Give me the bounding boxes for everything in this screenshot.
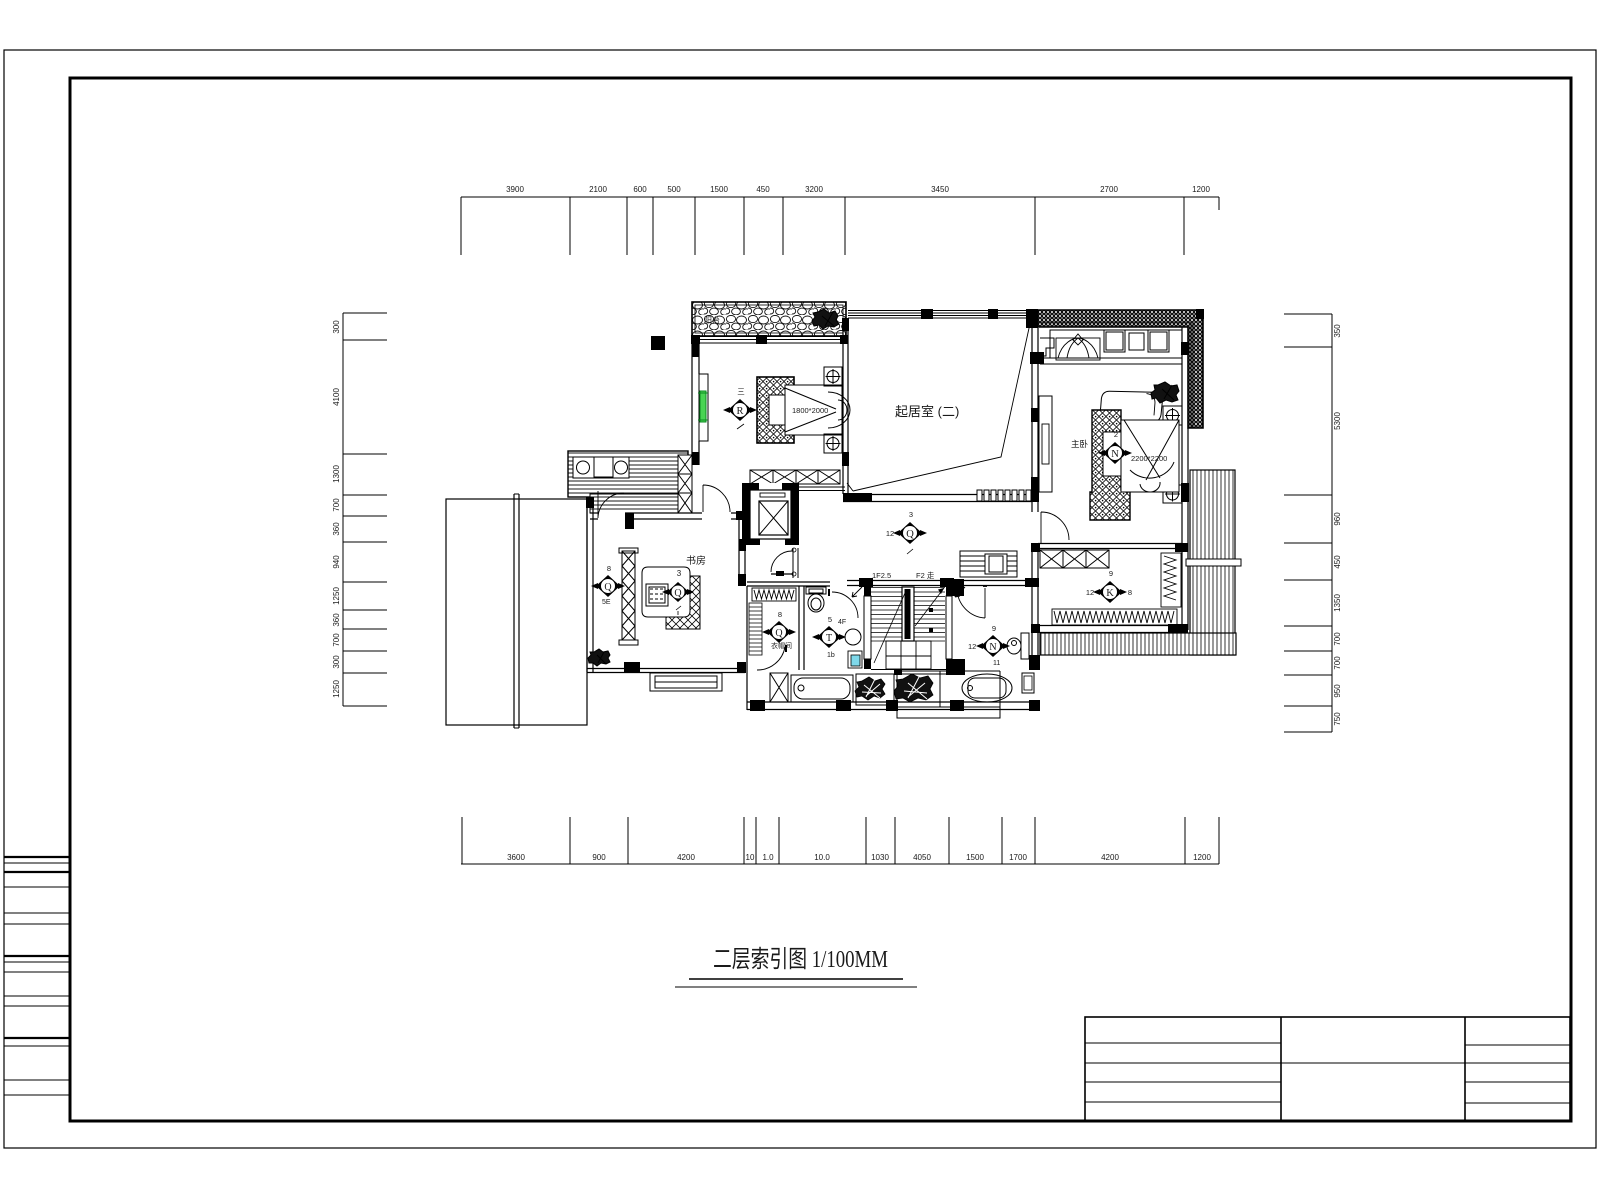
svg-text:500: 500 [667, 185, 681, 194]
svg-text:10.0: 10.0 [814, 853, 830, 862]
svg-text:2200*2200: 2200*2200 [1131, 454, 1167, 463]
svg-text:8: 8 [1128, 588, 1132, 597]
svg-text:3200: 3200 [805, 185, 823, 194]
svg-text:1200: 1200 [1192, 185, 1210, 194]
svg-text:9: 9 [1109, 569, 1113, 578]
svg-text:12: 12 [1086, 588, 1094, 597]
svg-text:600: 600 [633, 185, 647, 194]
svg-text:350: 350 [1333, 324, 1342, 338]
svg-text:Q: Q [674, 588, 682, 599]
svg-text:F2 走: F2 走 [916, 571, 935, 580]
svg-text:950: 950 [1333, 684, 1342, 698]
svg-text:Q: Q [906, 529, 914, 540]
svg-text:3450: 3450 [931, 185, 949, 194]
svg-text:4050: 4050 [913, 853, 931, 862]
svg-text:700: 700 [1333, 632, 1342, 646]
svg-text:1500: 1500 [966, 853, 984, 862]
svg-text:1030: 1030 [871, 853, 889, 862]
svg-text:10: 10 [746, 853, 755, 862]
svg-text:1.0: 1.0 [762, 853, 774, 862]
svg-text:1b: 1b [827, 652, 835, 659]
svg-text:12: 12 [968, 642, 976, 651]
svg-text:360: 360 [332, 522, 341, 536]
svg-text:360: 360 [332, 613, 341, 627]
svg-text:1250: 1250 [332, 587, 341, 605]
svg-text:450: 450 [756, 185, 770, 194]
svg-text:300: 300 [332, 320, 341, 334]
svg-text:Q: Q [604, 582, 612, 593]
svg-text:3900: 3900 [506, 185, 524, 194]
svg-text:阳台: 阳台 [704, 315, 720, 325]
svg-text:3: 3 [909, 510, 913, 519]
svg-text:主卧: 主卧 [1071, 439, 1089, 449]
svg-text:2700: 2700 [1100, 185, 1118, 194]
svg-text:二层索引图 1/100MM: 二层索引图 1/100MM [713, 946, 888, 973]
svg-text:K: K [1106, 588, 1114, 599]
svg-text:940: 940 [332, 555, 341, 569]
svg-text:3600: 3600 [507, 853, 525, 862]
svg-text:4200: 4200 [677, 853, 695, 862]
svg-text:1700: 1700 [1009, 853, 1027, 862]
svg-text:1300: 1300 [332, 465, 341, 483]
svg-text:4F: 4F [838, 619, 846, 626]
svg-text:衣帽间: 衣帽间 [771, 641, 792, 650]
svg-text:960: 960 [1333, 512, 1342, 526]
svg-text:4200: 4200 [1101, 853, 1119, 862]
svg-text:3: 3 [677, 569, 682, 578]
svg-text:5300: 5300 [1333, 412, 1342, 430]
svg-text:450: 450 [1333, 555, 1342, 569]
svg-text:1500: 1500 [710, 185, 728, 194]
svg-text:1F2.5: 1F2.5 [872, 571, 891, 580]
svg-text:8: 8 [778, 610, 782, 619]
svg-text:1350: 1350 [1333, 594, 1342, 612]
svg-text:Q: Q [775, 628, 783, 639]
svg-text:三: 三 [737, 387, 745, 396]
svg-text:R: R [736, 406, 743, 417]
svg-text:700: 700 [332, 498, 341, 512]
svg-text:12: 12 [886, 529, 894, 538]
svg-text:2100: 2100 [589, 185, 607, 194]
svg-text:书房: 书房 [686, 554, 706, 567]
svg-text:4100: 4100 [332, 388, 341, 406]
svg-text:700: 700 [332, 633, 341, 647]
svg-text:750: 750 [1333, 712, 1342, 726]
svg-text:N: N [989, 642, 996, 653]
svg-text:700: 700 [1333, 656, 1342, 670]
svg-text:1200: 1200 [1193, 853, 1211, 862]
svg-text:2: 2 [1114, 430, 1118, 439]
svg-text:9: 9 [992, 624, 996, 633]
svg-text:11: 11 [993, 660, 1000, 667]
svg-text:1250: 1250 [332, 680, 341, 698]
svg-text:8: 8 [607, 564, 611, 573]
svg-text:T: T [826, 633, 832, 644]
svg-text:300: 300 [332, 655, 341, 669]
svg-text:1800*2000: 1800*2000 [792, 406, 828, 415]
svg-text:5: 5 [828, 615, 832, 624]
svg-text:起居室 (二): 起居室 (二) [895, 404, 959, 419]
svg-text:N: N [1111, 449, 1119, 460]
svg-text:900: 900 [592, 853, 606, 862]
svg-text:5E: 5E [602, 599, 611, 606]
